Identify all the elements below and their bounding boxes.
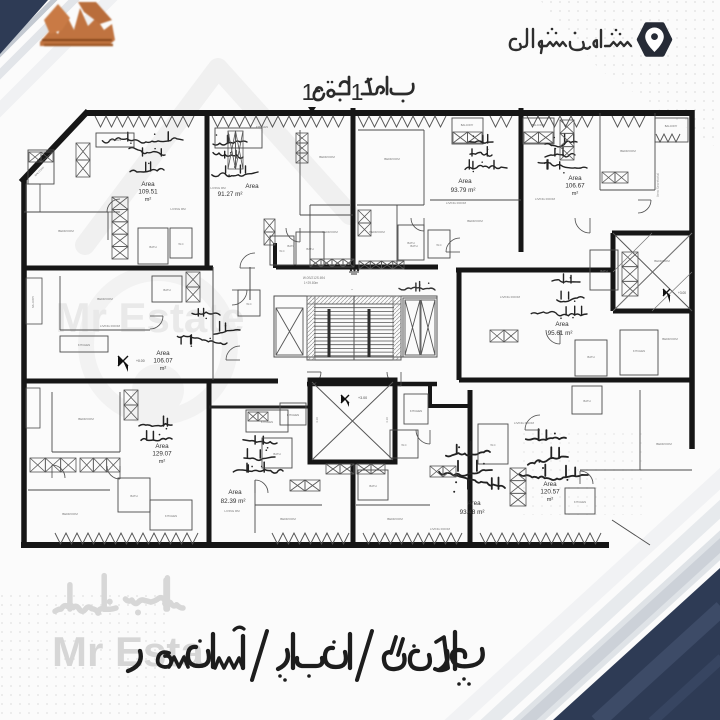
svg-text:LIVING ROOM: LIVING ROOM bbox=[446, 201, 467, 205]
svg-text:Area: Area bbox=[568, 175, 582, 182]
svg-text:LIVING RM: LIVING RM bbox=[210, 186, 226, 190]
svg-text:106.67: 106.67 bbox=[565, 183, 585, 190]
svg-text:LIVING ROOM: LIVING ROOM bbox=[430, 527, 451, 531]
svg-text:W.C: W.C bbox=[279, 249, 284, 253]
svg-text:91.27 m²: 91.27 m² bbox=[218, 191, 243, 198]
svg-text:BATH: BATH bbox=[410, 244, 417, 248]
svg-text:m²: m² bbox=[572, 191, 579, 197]
svg-text:BEDROOM: BEDROOM bbox=[656, 442, 672, 446]
svg-text:93.48 m²: 93.48 m² bbox=[460, 509, 485, 516]
svg-text:BALCONY: BALCONY bbox=[461, 123, 474, 127]
svg-text:LIVING ROOM: LIVING ROOM bbox=[535, 197, 556, 201]
svg-text:BATH: BATH bbox=[600, 269, 607, 273]
svg-text:W.C: W.C bbox=[401, 443, 406, 447]
svg-text:LIVING ROOM: LIVING ROOM bbox=[514, 421, 535, 425]
svg-text:129.07: 129.07 bbox=[152, 451, 172, 458]
svg-text:Area: Area bbox=[245, 183, 259, 190]
svg-text:KITCHEN: KITCHEN bbox=[109, 138, 121, 142]
svg-text:BEDROOM: BEDROOM bbox=[62, 512, 78, 516]
svg-text:BATH: BATH bbox=[149, 245, 156, 249]
svg-text:BALCONY: BALCONY bbox=[532, 123, 545, 127]
svg-text:W.C: W.C bbox=[436, 243, 441, 247]
svg-text:BATH: BATH bbox=[130, 494, 137, 498]
svg-text:BALCONY: BALCONY bbox=[32, 296, 35, 308]
svg-text:120.57: 120.57 bbox=[540, 489, 560, 496]
svg-text:BEDROOM: BEDROOM bbox=[322, 230, 338, 234]
svg-text:LIVING ROOM: LIVING ROOM bbox=[100, 324, 121, 328]
svg-text:93.79 m²: 93.79 m² bbox=[451, 187, 476, 194]
svg-text:Area: Area bbox=[543, 481, 557, 488]
svg-text:106.07: 106.07 bbox=[153, 358, 173, 365]
svg-text:LIVING RM: LIVING RM bbox=[170, 207, 186, 211]
svg-text:BEDROOM: BEDROOM bbox=[319, 155, 335, 159]
svg-text:BEDROOM: BEDROOM bbox=[387, 517, 403, 521]
svg-text:m²: m² bbox=[547, 497, 554, 503]
svg-text:KITCHEN: KITCHEN bbox=[410, 409, 422, 413]
svg-text:LIVING RM: LIVING RM bbox=[224, 509, 240, 513]
svg-text:4.10: 4.10 bbox=[385, 417, 389, 423]
svg-text:Item Secretorial: Item Secretorial bbox=[656, 173, 660, 197]
svg-text:Area: Area bbox=[555, 321, 569, 328]
svg-text:BATH: BATH bbox=[583, 399, 590, 403]
svg-text:KITCHEN: KITCHEN bbox=[287, 413, 299, 417]
svg-text:BATH: BATH bbox=[369, 484, 376, 488]
svg-text:Area: Area bbox=[467, 500, 481, 507]
svg-text:W.C: W.C bbox=[246, 302, 251, 306]
svg-text:m²: m² bbox=[145, 197, 152, 203]
svg-text:Area: Area bbox=[156, 350, 170, 357]
svg-text:KITCHEN: KITCHEN bbox=[574, 500, 586, 504]
svg-text:Area: Area bbox=[228, 489, 242, 496]
svg-text:BEDROOM: BEDROOM bbox=[662, 337, 678, 341]
svg-text:m²: m² bbox=[159, 459, 166, 465]
svg-text:W.0S/212S.694: W.0S/212S.694 bbox=[303, 276, 325, 280]
svg-text:LIVING ROOM: LIVING ROOM bbox=[500, 295, 521, 299]
svg-text:4.10: 4.10 bbox=[315, 417, 319, 423]
svg-text:W.C: W.C bbox=[178, 242, 183, 246]
svg-text:BATH: BATH bbox=[163, 288, 170, 292]
svg-text:KITCHEN: KITCHEN bbox=[78, 343, 90, 347]
svg-text:Area: Area bbox=[458, 178, 472, 185]
svg-text:KITCHEN: KITCHEN bbox=[256, 125, 268, 129]
svg-text:BATH: BATH bbox=[287, 244, 294, 248]
svg-text:+0.00: +0.00 bbox=[136, 359, 145, 363]
svg-text:1: 1 bbox=[351, 79, 364, 105]
svg-text:BATH: BATH bbox=[273, 452, 280, 456]
svg-text:+3.00: +3.00 bbox=[678, 291, 686, 295]
svg-text:+3.00: +3.00 bbox=[358, 396, 367, 400]
svg-text:BATH: BATH bbox=[587, 355, 594, 359]
svg-text:1: 1 bbox=[302, 79, 315, 105]
svg-text:W.C: W.C bbox=[490, 443, 495, 447]
svg-text:BALCONY: BALCONY bbox=[665, 124, 678, 128]
svg-text:KITCHEN: KITCHEN bbox=[633, 349, 645, 353]
svg-text:BEDROOM: BEDROOM bbox=[620, 149, 636, 153]
svg-text:Area: Area bbox=[155, 443, 169, 450]
svg-text:BEDROOM: BEDROOM bbox=[78, 417, 94, 421]
svg-text:BEDROOM: BEDROOM bbox=[58, 229, 74, 233]
svg-text:KITCHEN: KITCHEN bbox=[165, 514, 177, 518]
svg-text:BEDROOM: BEDROOM bbox=[369, 230, 385, 234]
svg-text:BEDROOM: BEDROOM bbox=[97, 297, 113, 301]
svg-text:BEDROOM: BEDROOM bbox=[384, 157, 400, 161]
svg-text:1+29.80m: 1+29.80m bbox=[304, 281, 319, 285]
svg-text:BEDROOM: BEDROOM bbox=[467, 219, 483, 223]
svg-text:Mr Esta: Mr Esta bbox=[52, 628, 204, 675]
svg-text:109.51: 109.51 bbox=[138, 189, 158, 196]
svg-text:BEDROOM: BEDROOM bbox=[280, 517, 296, 521]
svg-text:m²: m² bbox=[160, 366, 167, 372]
svg-text:Area: Area bbox=[141, 181, 155, 188]
svg-text:82.39 m²: 82.39 m² bbox=[221, 498, 246, 505]
